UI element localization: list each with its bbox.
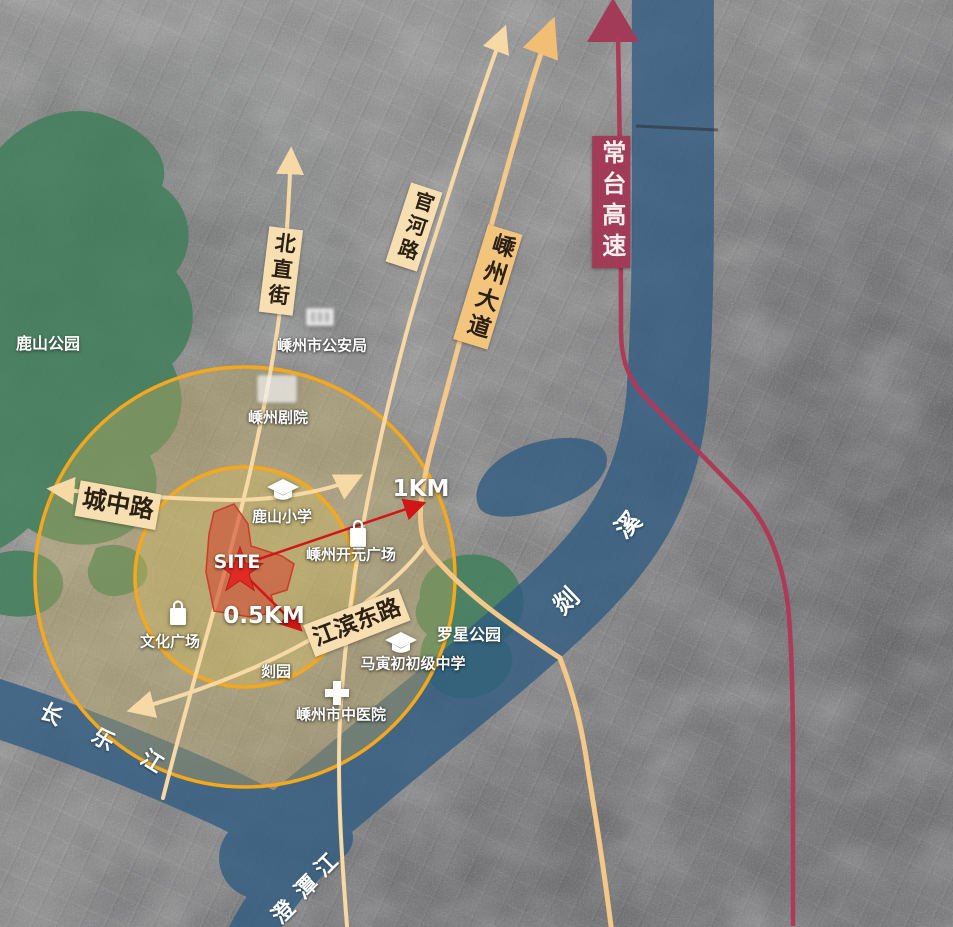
map-overlay-graphics (0, 0, 953, 927)
radius-500m-label: 0.5KM (223, 603, 304, 629)
site-analysis-map: 鹿山公园 嵊州市公安局 嵊州剧院 鹿山小学 嵊州开元广场 文化广场 剡园 马寅初… (0, 0, 953, 927)
culture-plaza-label: 文化广场 (140, 631, 200, 652)
junior-high-label: 马寅初初级中学 (360, 653, 465, 674)
luoxing-park-label: 罗星公园 (437, 621, 501, 645)
hospital-cross-icon (324, 680, 350, 706)
shopping-bag-icon (167, 600, 189, 628)
kaiyuan-plaza-label: 嵊州开元广场 (306, 544, 396, 565)
expressway-north-arrow-icon (587, 0, 639, 42)
primary-school-label: 鹿山小学 (252, 506, 312, 527)
tcm-hospital-label: 嵊州市中医院 (296, 704, 386, 725)
shan-garden-label: 剡园 (261, 661, 291, 682)
radius-1km-label: 1KM (393, 476, 450, 502)
expressway-label: 常台高速 (592, 136, 630, 268)
pond (477, 438, 607, 517)
police-station-label: 嵊州市公安局 (277, 335, 367, 356)
theater-label: 嵊州剧院 (248, 407, 308, 428)
police-building-icon (305, 304, 335, 328)
site-label: SITE (214, 551, 261, 573)
lushan-park-label: 鹿山公园 (16, 330, 80, 354)
theater-building-icon (255, 373, 299, 405)
graduation-cap-icon (266, 478, 300, 504)
